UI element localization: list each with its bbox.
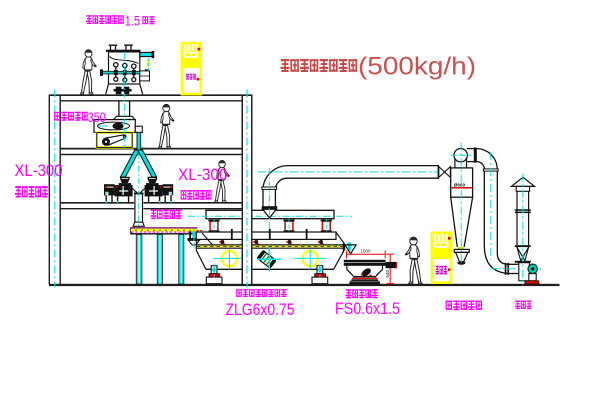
svg-text:Ø600: Ø600	[454, 183, 466, 188]
svg-text:(500kg/h): (500kg/h)	[358, 53, 476, 81]
svg-text:ZLG6x0.75: ZLG6x0.75	[226, 300, 295, 319]
svg-text:1.5: 1.5	[125, 13, 141, 29]
svg-text:FS0.6x1.5: FS0.6x1.5	[335, 300, 400, 318]
svg-text:XL-300: XL-300	[178, 165, 228, 184]
svg-text:XL-300: XL-300	[15, 161, 63, 180]
svg-text:540: 540	[385, 269, 390, 277]
svg-text:350: 350	[88, 110, 106, 125]
svg-text:1500: 1500	[361, 249, 372, 254]
